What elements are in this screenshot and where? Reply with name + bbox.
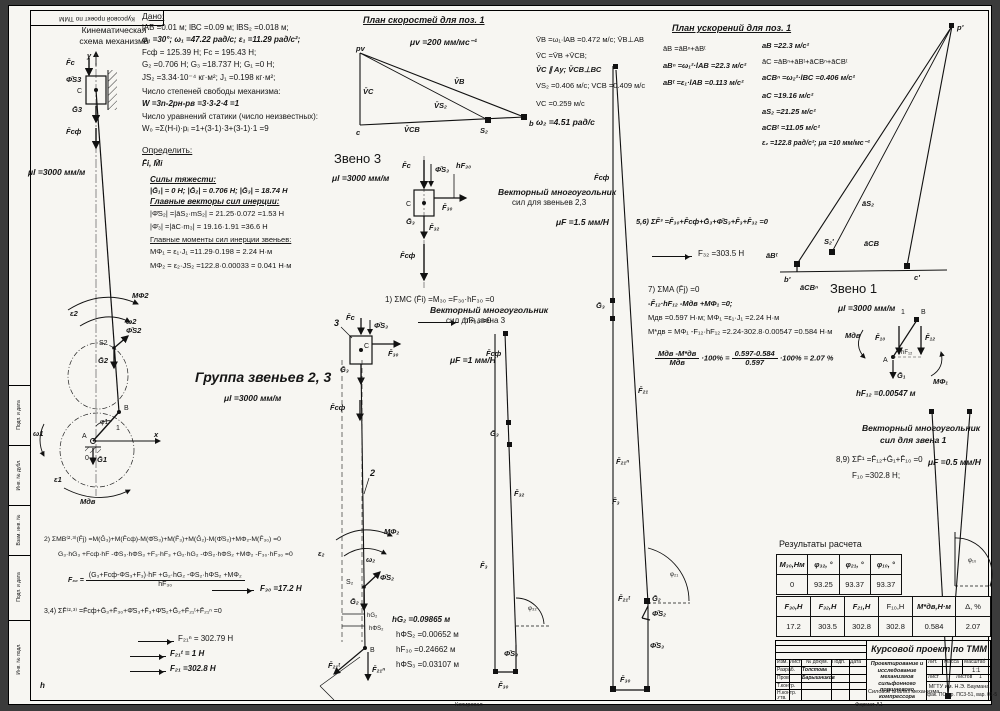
C-label: C — [406, 201, 411, 208]
stamp-name: Толстова — [802, 668, 827, 674]
eq7-frac1: Mдв -M*дв Mдв — [655, 350, 699, 368]
eq34-result-2: F₂₁ᵗ = 1 Н — [170, 650, 204, 659]
VC-vector-label: V̄C — [363, 87, 374, 96]
PhiS2-vector-label: Φ̄S2 — [126, 326, 142, 335]
results-title: Результаты расчета — [779, 540, 862, 550]
results-value: 2.07 — [956, 617, 991, 637]
polygon23-drawing: F̄сф Ḡ₃ F̄₂₁ F̄₂₁ⁿ F̄₃ F̄₂₁ᵗ Ḡ₂ Φ̄S₂ φ₂₁… — [592, 58, 697, 703]
F3-label: F̄₃ — [612, 497, 620, 506]
aCBn-label: āCBⁿ — [800, 283, 818, 292]
eq7-line2: -F̄₁₂·hF₁₂ -Mдв +MΦ₁ =0; — [648, 300, 732, 308]
stamp-scale-label: Масштаб — [964, 660, 985, 666]
forces-line: |Φ̄₃| =|āC·m₃| = 19.16·1.91 =36.6 Н — [150, 223, 268, 231]
result-arrow — [138, 641, 174, 642]
given-line: Число уравнений статики (число неизвестн… — [142, 113, 318, 122]
result-arrow — [130, 656, 166, 657]
results-header: φ₂₁, ° — [839, 555, 870, 575]
Fsf-label: F̄сф — [594, 173, 610, 182]
results-value: 0.584 — [913, 617, 956, 637]
link1-title: Звено 1 — [830, 282, 877, 296]
stamp-col: Подп. — [832, 660, 845, 666]
eq7-frac2-den: 0.597 — [732, 359, 778, 367]
stamp-col: № докум. — [806, 660, 828, 666]
link1-number: 1 — [901, 309, 905, 316]
Fsf-label: F̄сф — [330, 403, 346, 412]
margin-divider — [8, 445, 30, 446]
given-line: W =3n-2pн-pв =3·3-2·4 =1 — [142, 100, 239, 109]
margin-label: Взам. инв. № — [16, 505, 22, 555]
S2-point-label: S2 — [99, 340, 108, 347]
MPhi2-label: MΦ₂ — [384, 527, 399, 536]
link1-lever-value: hF₁₂ =0.00547 м — [856, 390, 916, 399]
eps1-label: ε1 — [54, 475, 62, 484]
PhiS3-vector-label: Φ̄S3 — [66, 75, 82, 84]
lever-value: hΦS₃ =0.03107 м — [396, 661, 459, 670]
F21t-label: F̄₂₁ᵗ — [328, 661, 341, 670]
eq7-frac2: 0.597-0.584 0.597 — [732, 350, 778, 368]
lever-value: hΦS₂ =0.00652 м — [396, 631, 459, 640]
link1-free-body: 1 B F̄₁₀ F̄₁₂ Mдв A hF₁₂ Ḡ₁ MΦ₁ — [845, 302, 960, 390]
Fsf-vector-label: F̄сф — [66, 127, 82, 136]
phi10-label: φ₁₀ — [968, 558, 977, 564]
G2-vector-label: Ḡ2 — [98, 356, 109, 365]
c-point-label: c — [356, 128, 361, 137]
eq56-result: F₃₂ =303.5 Н — [698, 250, 744, 259]
aBt-label: āBᵗ — [766, 251, 779, 260]
zero-label: 0 — [85, 455, 89, 462]
results-header: Δ, % — [956, 597, 991, 617]
lever-value: hF₃₀ =0.24662 м — [396, 646, 455, 655]
eq2-line2: G₃·hG₃ +Fсф·hF -ΦS₃·hΦS₃ +F₃·hF₃ +G₂·hG₂… — [58, 551, 293, 558]
B-point-label: B — [124, 405, 129, 412]
G3-label: Ḡ₃ — [406, 217, 415, 226]
kopiroval-note: Копировал — [455, 702, 483, 708]
PhiS3-label: Φ̄S₃ — [650, 641, 664, 650]
stray-h-label: h — [40, 682, 45, 691]
results-value: 0 — [777, 575, 808, 595]
MPhi2-label: MΦ2 — [132, 291, 149, 300]
stamp-divider — [962, 659, 963, 674]
G2-label: Ḡ₂ — [652, 594, 661, 603]
link3-number: 3 — [334, 318, 339, 328]
F21n-label: F̄₂₁ⁿ — [372, 665, 385, 674]
F21n-label: F̄₂₁ⁿ — [616, 457, 629, 466]
A-point-label: A — [82, 433, 87, 440]
eq7-tail: ·100% = 2.07 % — [780, 354, 834, 363]
stamp-sheets-value: 1 — [979, 675, 982, 681]
omega2-label: ω2 — [126, 317, 137, 326]
stamp-lit-label: Лит. — [928, 660, 937, 666]
stamp-subtitle: Силовой анализ механизма — [868, 689, 926, 695]
results-value: 303.5 — [811, 617, 845, 637]
omega1-label: ω1 — [33, 429, 43, 438]
stamp-divider — [789, 659, 790, 700]
results-value: 93.25 — [808, 575, 839, 595]
S2-prime-label: S₂' — [824, 237, 834, 246]
Fsf-label: F̄сф — [486, 349, 502, 358]
stamp-divider — [926, 681, 990, 682]
results-header: φ₁₀, ° — [870, 555, 901, 575]
given-line: JS₂ =3.34·10⁻⁴ кг·м²; J₁ =0.198 кг·м²; — [142, 74, 275, 83]
eq2-lhs: F₃₀ = — [68, 577, 84, 584]
eq34-result-3: F₂₁ =302.8 Н — [170, 665, 216, 674]
PhiS3-label: Φ̄S₃ — [504, 649, 518, 658]
results-value: 93.37 — [839, 575, 870, 595]
stamp-divider — [801, 659, 802, 700]
F30-label: F̄₃₀ — [498, 681, 508, 690]
given-line: lАВ =0.01 м; lВС =0.09 м; lBS₂ =0.018 м; — [142, 24, 289, 33]
eq34-line1: 3,4) ΣF̄⁽²·³⁾ =F̄сф+Ḡ₃+F̄₃₀+Φ̄S₃+F̄₃+Φ̄S… — [44, 608, 222, 616]
S2-label: S₂ — [346, 579, 354, 586]
A-label: A — [883, 357, 888, 364]
stamp-role: Разраб. — [777, 668, 795, 674]
margin-divider — [8, 385, 30, 386]
results-header: F₃₂,Н — [811, 597, 845, 617]
stamp-mass-label: Масса — [944, 660, 959, 666]
F30-label: F̄₃₀ — [388, 349, 398, 358]
Mdv-label: Mдв — [845, 331, 861, 340]
velocity-plan-title: План скоростей для поз. 1 — [363, 16, 485, 26]
velocity-formula: VC =0.259 м/с — [536, 100, 585, 108]
G2-label: Ḡ₂ — [350, 597, 359, 606]
title-block: Курсовой проект по ТММ Изм. Лист № докум… — [775, 640, 991, 701]
lever-value: hG₂ =0.09865 м — [392, 616, 450, 625]
hF30-label: hF₃₀ — [456, 161, 471, 170]
stamp-sheet-label: Лист — [928, 675, 939, 681]
results-header: φ₃₂, ° — [808, 555, 839, 575]
link2-number: 2 — [369, 468, 375, 478]
eq7-line1: 7) ΣMA (F̄j) =0 — [648, 286, 699, 295]
velocity-plan-drawing: pv c b S₂ V̄C V̄B V̄S₂ V̄CB — [356, 46, 536, 136]
G1-label: Ḡ₁ — [897, 371, 906, 380]
stamp-col: Изм. — [777, 660, 788, 666]
results-value: 93.37 — [870, 575, 901, 595]
forces-line: Силы тяжести: — [150, 176, 216, 185]
forces-line: MΦ₁ = ε₁·J₁ =11.29·0.198 = 2.24 Н·м — [150, 248, 272, 256]
margin-label: Подп. и дата — [16, 387, 22, 443]
eq89-line: 8,9) ΣF̄¹ =F̄₁₂+Ḡ₁+F̄₁₀ =0 — [836, 456, 923, 465]
format-note: Формат А1 — [855, 702, 883, 708]
eq7-error: Mдв -M*дв Mдв ·100% = 0.597-0.584 0.597 … — [655, 350, 833, 368]
forces-line: Главные моменты сил инерции звеньев: — [150, 236, 291, 244]
stamp-doc-1: Проектирование и исследование — [871, 661, 923, 674]
eq2-result: F₃₀ =17.2 Н — [260, 585, 302, 594]
result-arrow — [130, 671, 166, 672]
margin-label: Инв. № дубл. — [16, 447, 22, 503]
eq34-result-1: F₂₁ⁿ = 302.79 Н — [178, 635, 233, 644]
C-point-label: C — [77, 88, 82, 95]
given-title: Дано: — [142, 12, 164, 21]
b-point-label: b — [529, 119, 534, 128]
PhiS3-label: Φ̄S₃ — [374, 321, 388, 330]
p-prime-label: p' — [956, 23, 964, 32]
stamp-name: Барышников — [802, 676, 835, 682]
velocity-formula: V̄B =ω₁·lАВ =0.472 м/с; V̄B⊥АВ — [536, 36, 644, 44]
forces-line: |Φ̄S₂| =|āS₂·mS₂| = 21.25·0.072 =1.53 Н — [150, 210, 284, 218]
velocity-formula: ω₂ =4.51 рад/с — [536, 118, 595, 127]
pv-pole-label: pv — [355, 44, 366, 53]
eq7-frac1-den: Mдв — [655, 359, 699, 367]
stamp-divider — [776, 645, 866, 646]
group23-scale: μl =3000 мм/м — [224, 394, 281, 403]
determine-value: F̄i, M̄i — [142, 160, 162, 169]
results-table-forces: F₃₀,Н F₃₂,Н F₂₁,Н F₁₀,Н M*дв,Н·м Δ, % 17… — [776, 596, 991, 637]
eq2-frac: (G₃+Fсф-ΦS₃+F₃)·hF +G₂·hG₂ -ΦS₂·hΦS₂ +MΦ… — [86, 572, 245, 588]
margin-label: Подп. и дата — [16, 559, 22, 615]
stamp-divider — [942, 659, 943, 674]
forces-line: Главные векторы сил инерции: — [150, 198, 279, 207]
results-table-angles: M₃₀,Нм φ₃₂, ° φ₂₁, ° φ₁₀, ° 0 93.25 93.3… — [776, 554, 902, 595]
results-header: F₁₀,Н — [879, 597, 913, 617]
polygon3-drawing: F̄сф Ḡ₃ F̄₃₂ F̄₃ φ₃₂ Φ̄S₃ F̄₃₀ — [478, 326, 573, 698]
given-line: G₂ =0.706 Н; G₃ =18.737 Н; G₁ =0 Н; — [142, 61, 274, 70]
stamp-role: Утв. — [777, 696, 787, 700]
G1-vector-label: Ḡ1 — [97, 455, 107, 464]
eq7-mid: ·100% = — [701, 354, 729, 363]
F30-label: F̄₃₀ — [620, 675, 630, 684]
link1-label: 1 — [116, 425, 120, 432]
result-arrow — [212, 590, 254, 591]
F12-label: F̄₁₂ — [925, 333, 935, 342]
given-line: W₀ =Σ(H-i)·pᵢ =1+(3-1)·3+(3-1)·1 =9 — [142, 125, 269, 134]
link3-title: Звено 3 — [334, 152, 381, 166]
stamp-divider — [776, 652, 866, 653]
G3-label: Ḡ₃ — [340, 365, 349, 374]
VS2-vector-label: V̄S₂ — [434, 101, 447, 110]
Fc-label: F̄с — [402, 161, 412, 170]
PhiS2-label: Φ̄S₂ — [380, 573, 394, 582]
stamp-org: МГТУ им. Н.Э. Баумана — [928, 684, 990, 690]
given-line: Число степеней свободы механизма: — [142, 88, 281, 97]
B-label: B — [370, 647, 375, 654]
stamp-doc-2: механизмов сильфонного — [878, 674, 916, 687]
F30-label: F̄₃₀ — [442, 203, 452, 212]
stamp-org2: фак. ПС, гр. ПС3-51, вар. 01-5 — [927, 693, 990, 699]
eq56-line1: 5,6) ΣF̄³ =F̄₃₀+F̄сф+Ḡ₃+Φ̄S₃+F̄₃+F̄₃₂ =0 — [636, 218, 768, 226]
group23-drawing: 3 F̄с Φ̄S₃ C F̄₃₀ Ḡ₃ F̄сф 2 MΦ₂ ε₂ ω₂ S₂… — [300, 312, 485, 707]
eq2-denominator: hF₃₀ — [86, 581, 245, 589]
margin-label: Инв. № подл. — [16, 629, 22, 689]
eps2-label: ε2 — [70, 309, 79, 318]
G3-vector-label: Ḡ3 — [72, 105, 83, 114]
Fc-vector-label: F̄с — [66, 58, 76, 67]
link3-scale: μl =3000 мм/м — [332, 174, 389, 183]
eq1-line: 1) ΣMC (F̄i) =M₃₀ =F₃₀·hF₃₀ =0 — [385, 296, 494, 305]
b-prime-label: b' — [784, 275, 791, 284]
results-header: F₂₁,Н — [845, 597, 879, 617]
stamp-divider — [831, 659, 832, 700]
aS2-label: āS₂ — [862, 199, 874, 208]
aCB-label: āCB — [864, 239, 880, 248]
given-line: Fсф = 125.39 Н; Fс = 195.43 Н; — [142, 49, 256, 58]
polygon23-title-2: сил для звеньев 2,3 — [512, 199, 586, 208]
F32-label: F̄₃₂ — [429, 223, 439, 232]
MPhi1-label: MΦ₁ — [933, 377, 948, 386]
eps2-label: ε₂ — [318, 549, 325, 558]
S2-point-label: S₂ — [480, 126, 488, 135]
results-value: 302.8 — [879, 617, 913, 637]
results-header: M₃₀,Нм — [777, 555, 808, 575]
eq2-line1: 2) ΣMB⁽²·³⁾(F̄j) =M(Ḡ₃)+M(F̄сф)-M(Φ̄S₃)+… — [44, 536, 281, 543]
acceleration-formula: āB =āBⁿ+āBᵗ — [663, 45, 706, 53]
margin-divider — [8, 555, 30, 556]
margin-divider — [8, 620, 30, 621]
F21t-label: F̄₂₁ᵗ — [618, 594, 631, 603]
eq89-result: F₁₀ =302.8 Н; — [852, 472, 900, 481]
Mdv-label: Mдв — [80, 497, 96, 506]
hG2-tick-label: hG₂ — [367, 613, 378, 619]
results-value: 302.8 — [845, 617, 879, 637]
given-line: φ₁ =30°; ω₁ =47.22 рад/с; ε₁ =11.29 рад/… — [142, 36, 300, 45]
C-label: C — [364, 343, 369, 350]
eq7-line4: M*дв = MΦ₁ -F₁₂·hF₁₂ =2.24-302.8·0.00547… — [648, 328, 832, 336]
PhiS3-label: Φ̄S₃ — [435, 165, 449, 174]
stamp-sheets-label: Листов — [956, 675, 972, 681]
G3-label: Ḡ₃ — [490, 429, 499, 438]
eq2-numerator: (G₃+Fсф-ΦS₃+F₃)·hF +G₂·hG₂ -ΦS₂·hΦS₂ +MΦ… — [86, 572, 245, 581]
VCB-vector-label: V̄CB — [404, 125, 420, 134]
drawing-page: Подп. и дата Инв. № дубл. Взам. инв. № П… — [0, 0, 1000, 711]
eq7-line3: Mдв =0.597 Н·м; MΦ₁ =ε₁·J₁ =2.24 Н·м — [648, 314, 779, 322]
phi21-label: φ₂₁ — [670, 572, 678, 578]
forces-line: |Ḡ₁| = 0 Н; |Ḡ₂| = 0.706 Н; |Ḡ₃| = 18.74… — [150, 187, 288, 195]
link3-free-body: F̄с Φ̄S₃ hF₃₀ F̄₃₀ C Ḡ₃ F̄₃₂ F̄сф — [398, 152, 508, 292]
stamp-divider — [849, 659, 850, 700]
results-value: 17.2 — [777, 617, 811, 637]
stamp-title: Курсовой проект по ТММ — [870, 645, 988, 655]
Fc-label: F̄с — [346, 313, 356, 322]
hPhiS2-tick-label: hΦS₂ — [369, 626, 384, 632]
x-axis-label: x — [153, 430, 159, 439]
velocity-formula: V̄C =V̄B +V̄CB; — [536, 52, 587, 60]
c-prime-label: c' — [914, 273, 920, 282]
F32-label: F̄₃₂ — [514, 489, 524, 498]
B-label: B — [921, 309, 926, 316]
forces-line: MΦ₂ = ε₂·JS₂ =122.8·0.00033 = 0.041 Н·м — [150, 262, 291, 270]
F21-label: F̄₂₁ — [638, 386, 648, 395]
F10-label: F̄₁₀ — [875, 333, 885, 342]
determine-title: Определить: — [142, 146, 192, 155]
results-header: F₃₀,Н — [777, 597, 811, 617]
stamp-col: Лист — [790, 660, 801, 666]
results-header: M*дв,Н·м — [913, 597, 956, 617]
Fsf-label: F̄сф — [400, 251, 416, 260]
omega2-label: ω₂ — [366, 555, 375, 564]
G3-label: Ḡ₃ — [596, 301, 605, 310]
hF12-label: hF₁₂ — [901, 350, 913, 356]
phi32-label: φ₃₂ — [528, 606, 537, 612]
PhiS2-label: Φ̄S₂ — [652, 609, 666, 618]
stamp-col: Дата — [850, 660, 861, 666]
acceleration-plan-drawing: p' āS₂ āCB āBᵗ b' S₂' āCBⁿ c' — [742, 14, 967, 306]
stamp-divider — [926, 666, 990, 667]
result-arrow — [652, 256, 692, 257]
eq2-fraction: F₃₀ = (G₃+Fсф-ΦS₃+F₃)·hF +G₂·hG₂ -ΦS₂·hΦ… — [68, 572, 245, 588]
stamp-divider — [866, 641, 867, 700]
VB-vector-label: V̄B — [454, 77, 465, 86]
